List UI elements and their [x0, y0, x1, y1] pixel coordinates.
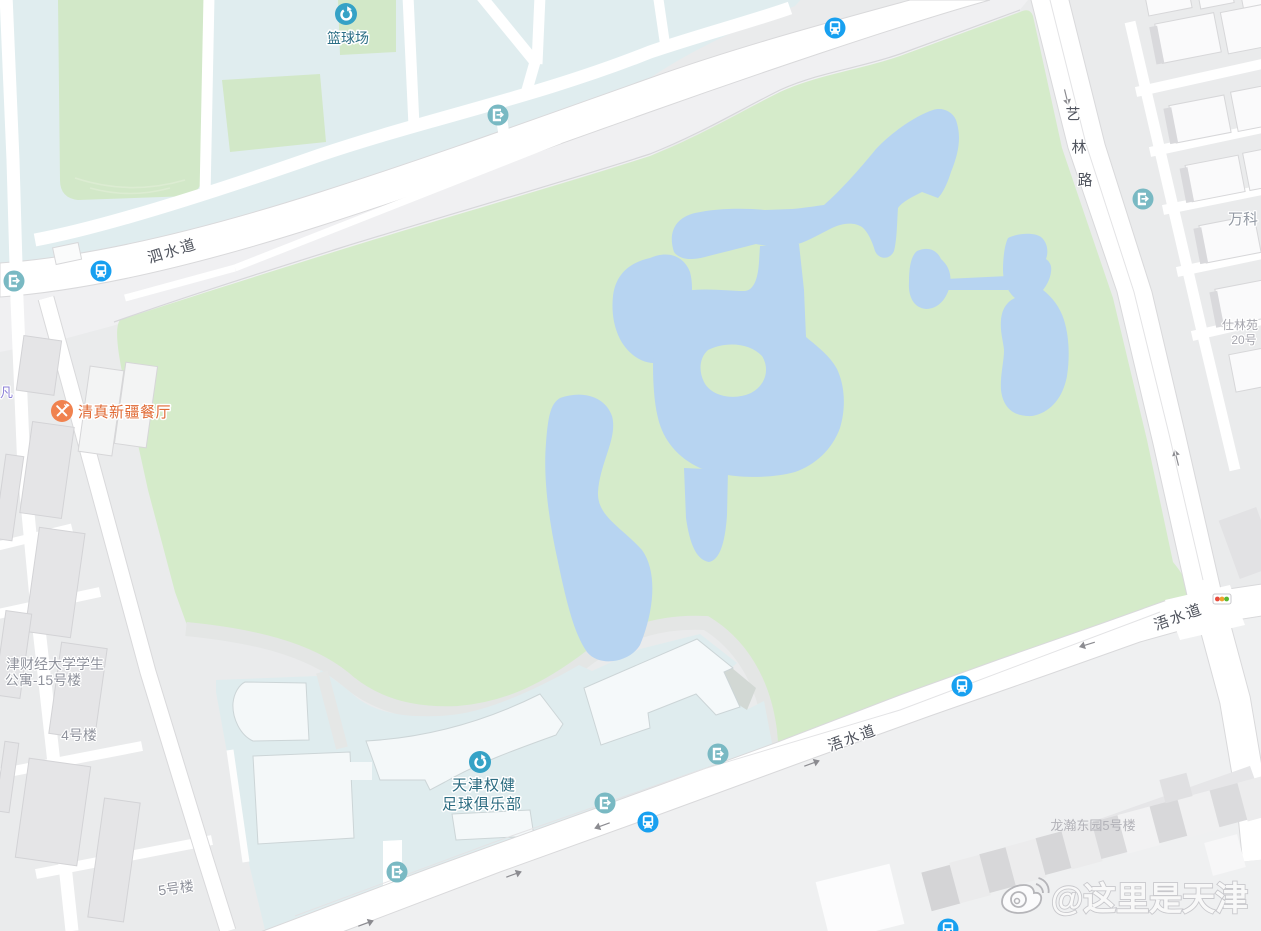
svg-text:足球俱乐部: 足球俱乐部 [442, 796, 522, 813]
svg-text:4号楼: 4号楼 [61, 727, 97, 743]
svg-text:篮球场: 篮球场 [327, 30, 369, 46]
svg-text:仕林苑: 仕林苑 [1222, 318, 1258, 332]
svg-text:路: 路 [1077, 172, 1092, 189]
svg-text:凡: 凡 [0, 385, 13, 400]
svg-text:万科: 万科 [1228, 211, 1258, 228]
svg-text:林: 林 [1071, 139, 1086, 156]
svg-text:龙瀚东园5号楼: 龙瀚东园5号楼 [1050, 818, 1135, 833]
svg-text:天津权健: 天津权健 [452, 777, 516, 794]
svg-text:津财经大学学生: 津财经大学学生 [6, 656, 104, 672]
svg-text:公寓-15号楼: 公寓-15号楼 [5, 672, 81, 688]
svg-text:清真新疆餐厅: 清真新疆餐厅 [78, 403, 171, 421]
svg-text:20号: 20号 [1231, 333, 1256, 347]
svg-text:@这里是天津: @这里是天津 [1051, 880, 1248, 917]
svg-text:艺: 艺 [1065, 106, 1080, 123]
